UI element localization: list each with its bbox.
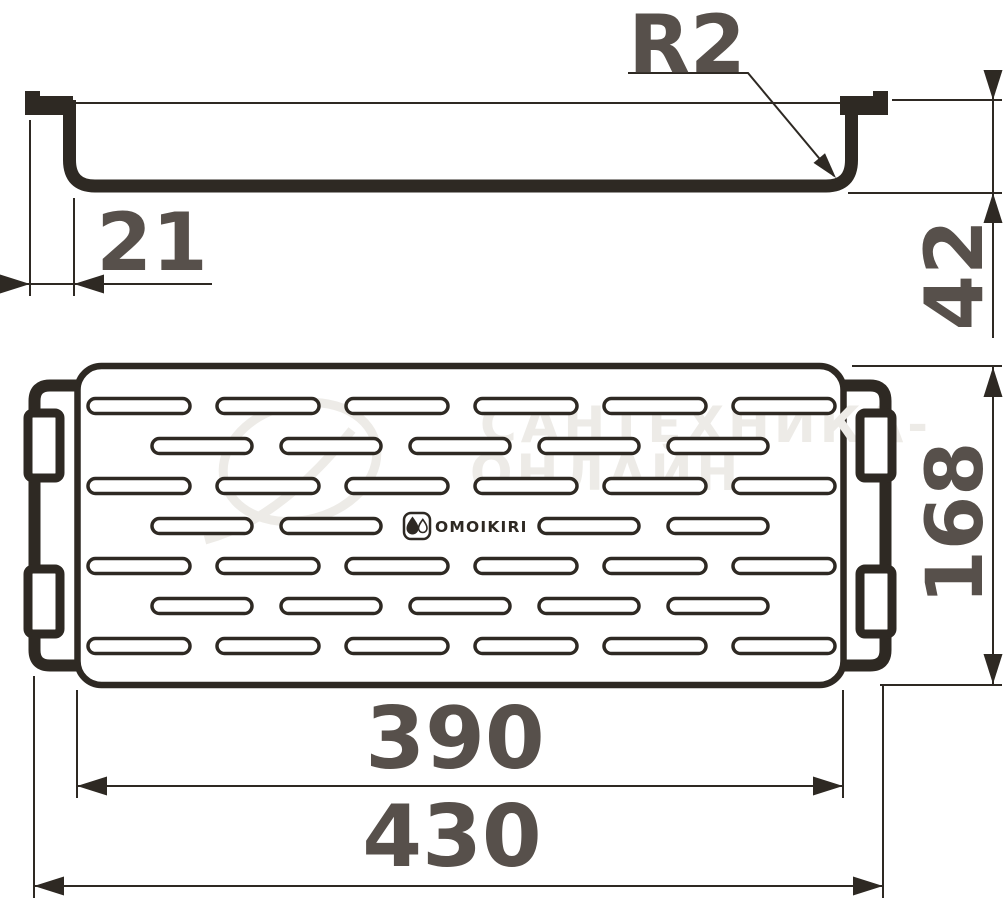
drain-slot: [604, 399, 706, 414]
brand-name: OMOIKIRI: [435, 518, 528, 536]
dim-label-390: 390: [365, 689, 545, 789]
dim-hook-offset: 21: [6, 120, 212, 296]
arrowhead-icon: [853, 877, 883, 896]
right-hook-tab: [840, 91, 888, 115]
drain-slot: [668, 599, 768, 614]
dim-label-42: 42: [908, 219, 1001, 330]
arrowhead-icon: [984, 193, 1003, 223]
top-view: САНТЕХНИКА- ОНЛАЙН OMOIKIRI: [28, 366, 932, 685]
drain-slot: [668, 439, 768, 454]
drain-slot: [346, 479, 448, 494]
arrowhead-icon: [984, 367, 1003, 397]
right-clip-bottom: [860, 569, 892, 634]
drain-slot: [668, 519, 768, 534]
arrowhead-icon: [813, 777, 843, 796]
side-view: 21 42 R2: [6, 0, 1002, 338]
left-clip-bottom: [28, 569, 60, 634]
drain-slot: [346, 559, 448, 574]
dim-profile-height: 42: [848, 80, 1002, 338]
drain-slot: [281, 439, 381, 454]
drain-slot: [733, 559, 835, 574]
drain-slot: [88, 479, 190, 494]
dim-label-430: 430: [362, 787, 542, 887]
dim-tray-width: 390: [77, 689, 843, 798]
drain-slot: [733, 479, 835, 494]
callout-corner-radius: R2: [628, 0, 834, 176]
profile-outline: [70, 100, 852, 186]
arrowhead-icon: [984, 654, 1003, 684]
drain-slot: [604, 559, 706, 574]
drain-slot: [217, 479, 319, 494]
drain-slot: [88, 639, 190, 654]
drain-slot: [217, 559, 319, 574]
drawing-canvas: 21 42 R2 САНТЕХНИКА- ОНЛАЙН: [0, 0, 1006, 900]
left-hook-tab: [25, 91, 73, 115]
drain-slot: [281, 519, 381, 534]
drain-slot: [539, 439, 639, 454]
drain-slot: [475, 639, 577, 654]
arrowhead-icon: [74, 275, 104, 294]
drain-slot: [346, 639, 448, 654]
drain-slot: [346, 399, 448, 414]
drain-slot: [410, 439, 510, 454]
drain-slot: [152, 439, 252, 454]
drain-slot: [152, 599, 252, 614]
drain-slot: [152, 519, 252, 534]
technical-drawing: 21 42 R2 САНТЕХНИКА- ОНЛАЙН: [0, 0, 1006, 900]
drain-slot: [604, 639, 706, 654]
drain-slot: [475, 559, 577, 574]
arrowhead-icon: [77, 777, 107, 796]
drain-slot: [410, 599, 510, 614]
drain-slot: [88, 399, 190, 414]
drain-slot: [475, 479, 577, 494]
drain-slot: [539, 519, 639, 534]
drain-slot: [281, 599, 381, 614]
left-clip-top: [28, 413, 60, 478]
dim-label-168: 168: [911, 442, 1001, 605]
arrowhead-icon: [0, 275, 30, 294]
drain-slot: [539, 599, 639, 614]
drain-slot: [733, 399, 835, 414]
drain-slot: [733, 639, 835, 654]
right-clip-top: [860, 413, 892, 478]
dim-label-r2: R2: [628, 0, 745, 91]
drain-slot: [88, 559, 190, 574]
drain-slot: [604, 479, 706, 494]
arrowhead-icon: [34, 877, 64, 896]
arrowhead-icon: [984, 70, 1003, 100]
drain-slot: [217, 399, 319, 414]
drain-slot: [475, 399, 577, 414]
dim-label-21: 21: [96, 196, 207, 289]
drain-slot: [217, 639, 319, 654]
